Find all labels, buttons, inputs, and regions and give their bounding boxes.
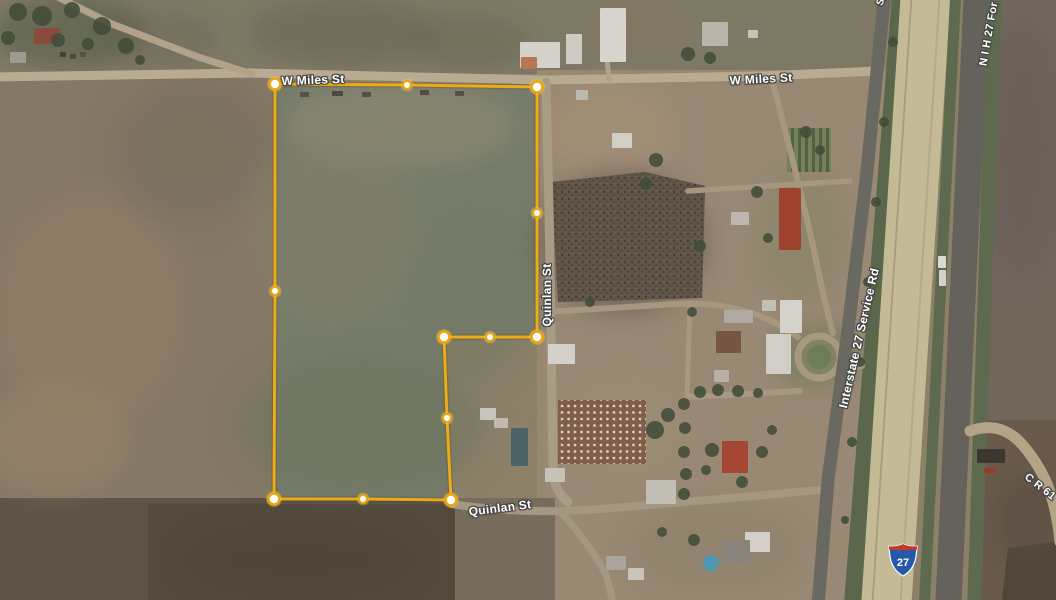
boundary-vertex-handle[interactable] xyxy=(359,495,367,503)
boundary-vertex-handle[interactable] xyxy=(443,414,451,422)
shield-route-number: 27 xyxy=(897,557,909,569)
boundary-vertex-handle[interactable] xyxy=(271,287,279,295)
satellite-map-view[interactable]: W Miles StW Miles StQuinlan StQuinlan St… xyxy=(0,0,1056,600)
boundary-vertex-handle[interactable] xyxy=(269,494,280,505)
boundary-vertex-handle[interactable] xyxy=(532,82,543,93)
interstate-27-shield-icon: 27 xyxy=(888,543,918,577)
boundary-vertex-handle[interactable] xyxy=(533,209,541,217)
boundary-vertex-handle[interactable] xyxy=(532,332,543,343)
boundary-vertex-handle[interactable] xyxy=(403,81,411,89)
boundary-vertex-handle[interactable] xyxy=(486,333,494,341)
noise-texture xyxy=(0,0,1056,600)
boundary-vertex-handle[interactable] xyxy=(446,495,457,506)
boundary-vertex-handle[interactable] xyxy=(270,79,281,90)
boundary-vertex-handle[interactable] xyxy=(439,332,450,343)
map-imagery xyxy=(0,0,1056,600)
